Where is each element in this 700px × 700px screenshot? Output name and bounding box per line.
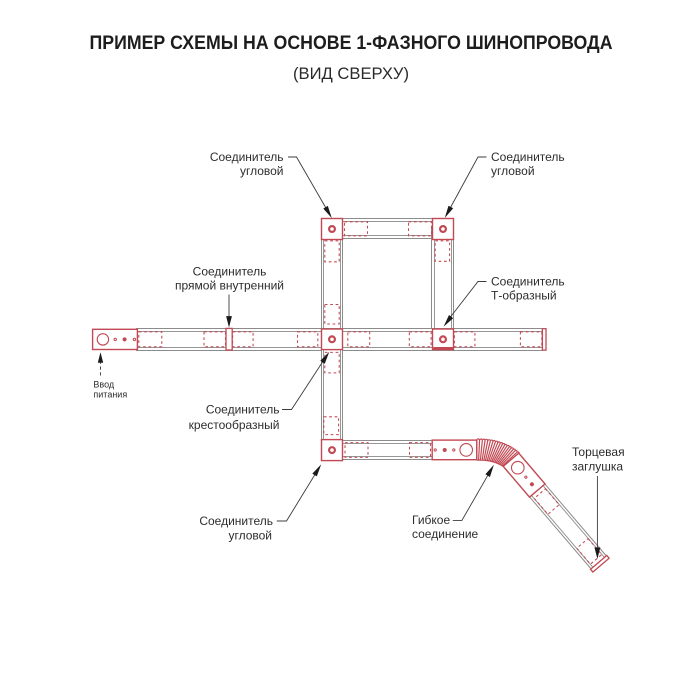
svg-text:Соединитель: Соединитель — [491, 150, 565, 164]
svg-text:Ввод: Ввод — [93, 380, 114, 390]
svg-text:Соединитель: Соединитель — [491, 275, 565, 289]
svg-text:угловой: угловой — [491, 164, 535, 178]
svg-text:Гибкое: Гибкое — [412, 513, 450, 527]
svg-text:Соединитель: Соединитель — [206, 403, 280, 417]
svg-text:Соединитель: Соединитель — [210, 150, 284, 164]
svg-text:Соединитель: Соединитель — [199, 514, 273, 528]
svg-text:Соединитель: Соединитель — [193, 265, 267, 279]
svg-text:соединение: соединение — [412, 527, 479, 541]
svg-text:угловой: угловой — [228, 529, 272, 543]
svg-text:Торцевая: Торцевая — [572, 445, 625, 459]
svg-text:Т-образный: Т-образный — [491, 289, 557, 303]
svg-text:прямой внутренний: прямой внутренний — [175, 279, 284, 293]
svg-text:питания: питания — [93, 390, 127, 400]
svg-text:заглушка: заглушка — [572, 460, 623, 474]
svg-text:(ВИД СВЕРХУ): (ВИД СВЕРХУ) — [293, 65, 409, 83]
svg-text:угловой: угловой — [240, 164, 284, 178]
svg-text:крестообразный: крестообразный — [189, 418, 280, 432]
svg-text:ПРИМЕР СХЕМЫ НА ОСНОВЕ 1-ФАЗНО: ПРИМЕР СХЕМЫ НА ОСНОВЕ 1-ФАЗНОГО ШИНОПРО… — [90, 32, 613, 54]
